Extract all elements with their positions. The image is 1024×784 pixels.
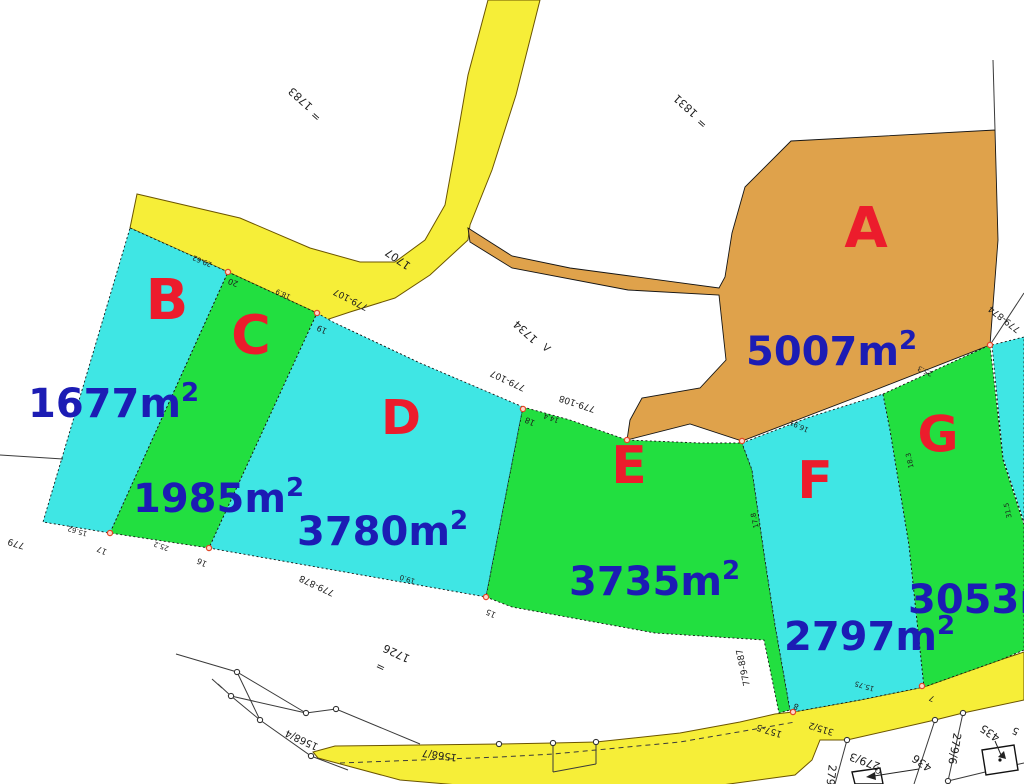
parcel-A-letter: A bbox=[844, 196, 888, 261]
survey-node bbox=[303, 710, 308, 715]
survey-l1b bbox=[306, 709, 420, 744]
parcel-C-letter: C bbox=[231, 304, 271, 367]
map-label-779887: 779-887 bbox=[735, 648, 753, 687]
map-label-435: 435 bbox=[978, 722, 1003, 745]
map-label-436: 436 bbox=[910, 752, 935, 775]
survey-node bbox=[550, 740, 555, 745]
map-label-779878: 779-878 bbox=[298, 572, 337, 597]
line-topright-vertical bbox=[993, 60, 995, 130]
map-label-779107: 779-107 bbox=[489, 367, 527, 392]
cadastral-map: 1783=1831=1707779-1071734Λ779-107779-108… bbox=[0, 0, 1024, 784]
vertex-marker bbox=[314, 310, 319, 315]
building-435-dot bbox=[998, 758, 1001, 761]
parcel-F-letter: F bbox=[797, 451, 833, 511]
survey-node bbox=[960, 710, 965, 715]
map-label-2796: 279/6 bbox=[945, 732, 963, 765]
vertex-marker bbox=[987, 342, 992, 347]
survey-node bbox=[496, 741, 501, 746]
map-label-1726: 1726 bbox=[381, 641, 412, 665]
map-label-15684: 1568/4 bbox=[284, 727, 321, 752]
map-label-779: 779 bbox=[6, 536, 26, 551]
map-label-17: 17 bbox=[95, 544, 108, 556]
survey-tick bbox=[212, 679, 222, 688]
map-label-15: 15 bbox=[484, 607, 497, 619]
survey-node bbox=[257, 717, 262, 722]
survey-node bbox=[844, 737, 849, 742]
map-canvas: 1783=1831=1707779-1071734Λ779-107779-108… bbox=[0, 0, 1024, 784]
survey-node bbox=[308, 753, 313, 758]
survey-node bbox=[228, 693, 233, 698]
parcel-A-area: 5007m2 bbox=[746, 326, 917, 375]
map-label-: = bbox=[694, 116, 710, 132]
survey-node bbox=[234, 669, 239, 674]
map-label-1831: 1831 bbox=[671, 91, 701, 119]
vertex-marker bbox=[919, 683, 924, 688]
vertex-marker bbox=[206, 545, 211, 550]
survey-node bbox=[932, 717, 937, 722]
parcel-C-area: 1985m2 bbox=[133, 473, 304, 522]
map-label-2799: 279/9 bbox=[822, 764, 839, 784]
survey-node bbox=[593, 739, 598, 744]
map-label-779108: 779-108 bbox=[558, 392, 597, 413]
parcel-D-area: 3780m2 bbox=[297, 506, 468, 555]
vertex-marker bbox=[739, 438, 744, 443]
survey-l3 bbox=[231, 696, 306, 713]
survey-node bbox=[945, 778, 950, 783]
vertex-marker bbox=[225, 269, 230, 274]
vertex-marker bbox=[483, 594, 488, 599]
map-label-16: 16 bbox=[195, 556, 208, 568]
parcel-E-letter: E bbox=[611, 436, 647, 496]
line-left-horizontal bbox=[0, 455, 63, 459]
parcel-D-letter: D bbox=[381, 390, 421, 446]
map-label-1734: 1734 bbox=[511, 317, 541, 345]
vertex-marker bbox=[107, 530, 112, 535]
map-label-5: 5 bbox=[1011, 724, 1021, 737]
map-label-: = bbox=[374, 659, 388, 675]
map-label-: = bbox=[308, 109, 324, 125]
vertex-marker bbox=[520, 406, 525, 411]
map-label-: Λ bbox=[541, 340, 554, 353]
parcel-G-area: 3053m2 bbox=[908, 574, 1024, 623]
parcel-G-letter: G bbox=[917, 406, 958, 464]
map-label-1783: 1783 bbox=[286, 84, 316, 112]
parcel-E-area: 3735m2 bbox=[569, 556, 740, 605]
parcel-B-letter: B bbox=[146, 268, 189, 333]
survey-node bbox=[333, 706, 338, 711]
parcel-B-area: 1677m2 bbox=[28, 378, 199, 427]
